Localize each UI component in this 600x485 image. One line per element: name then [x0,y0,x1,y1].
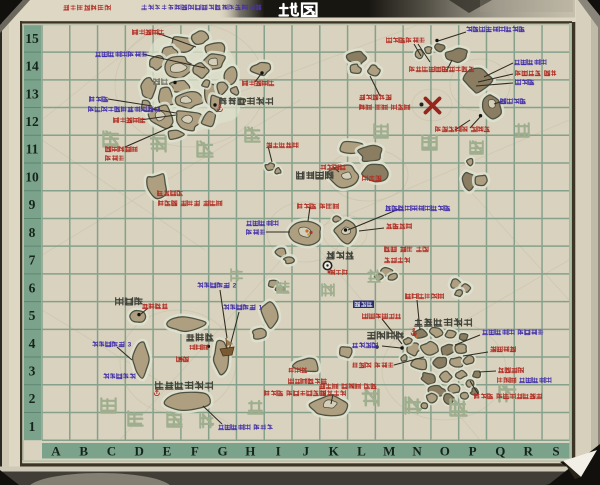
svg-text:H: H [245,444,255,459]
svg-text:2: 2 [233,283,237,290]
svg-text:3: 3 [128,342,132,349]
svg-text:G: G [218,444,228,459]
svg-text:11: 11 [26,142,39,157]
svg-text:6: 6 [29,280,36,295]
svg-text:I: I [276,444,281,459]
svg-text:M: M [383,444,395,459]
svg-text:9: 9 [29,197,36,212]
svg-text:Q: Q [495,444,505,459]
svg-text:B: B [79,444,88,459]
svg-text:8: 8 [29,225,36,240]
svg-text:13: 13 [25,86,39,101]
svg-text:2: 2 [29,391,36,406]
svg-text:D: D [135,444,144,459]
svg-text:O: O [440,444,450,459]
svg-text:A: A [51,444,61,459]
svg-text:1: 1 [259,305,263,312]
svg-text:14: 14 [25,59,39,74]
svg-text:1: 1 [29,419,36,434]
svg-text:5: 5 [29,308,36,323]
svg-text:N: N [412,444,422,459]
svg-text:15: 15 [25,31,39,46]
svg-text:C: C [107,444,116,459]
svg-text:4: 4 [29,336,36,351]
svg-text:3: 3 [29,364,36,379]
svg-text:J: J [303,444,310,459]
svg-text:S: S [552,444,559,459]
svg-text:E: E [163,444,172,459]
svg-text:F: F [191,444,199,459]
svg-text:10: 10 [25,169,39,184]
svg-text:7: 7 [29,253,36,268]
svg-text:12: 12 [25,114,39,129]
svg-text:P: P [469,444,477,459]
svg-text:K: K [329,444,340,459]
svg-text:R: R [523,444,533,459]
svg-text:L: L [357,444,366,459]
